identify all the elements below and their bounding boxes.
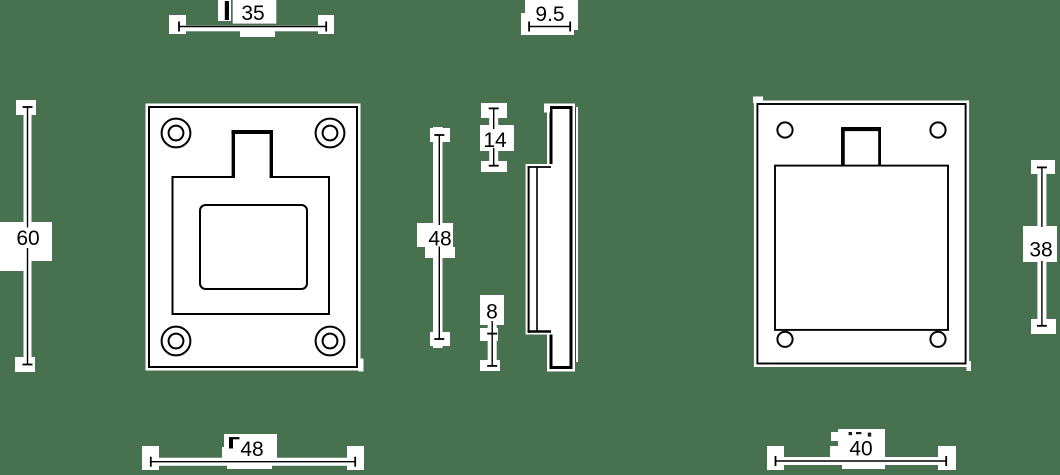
svg-text:9.5: 9.5 <box>535 3 564 26</box>
svg-text:14: 14 <box>483 129 507 152</box>
svg-text:60: 60 <box>16 227 39 250</box>
svg-text:8: 8 <box>486 301 498 324</box>
svg-text:48: 48 <box>428 227 451 250</box>
svg-text:38: 38 <box>1029 239 1052 262</box>
svg-text:40: 40 <box>849 438 872 461</box>
svg-text:35: 35 <box>241 2 264 25</box>
svg-text:48: 48 <box>240 438 263 461</box>
